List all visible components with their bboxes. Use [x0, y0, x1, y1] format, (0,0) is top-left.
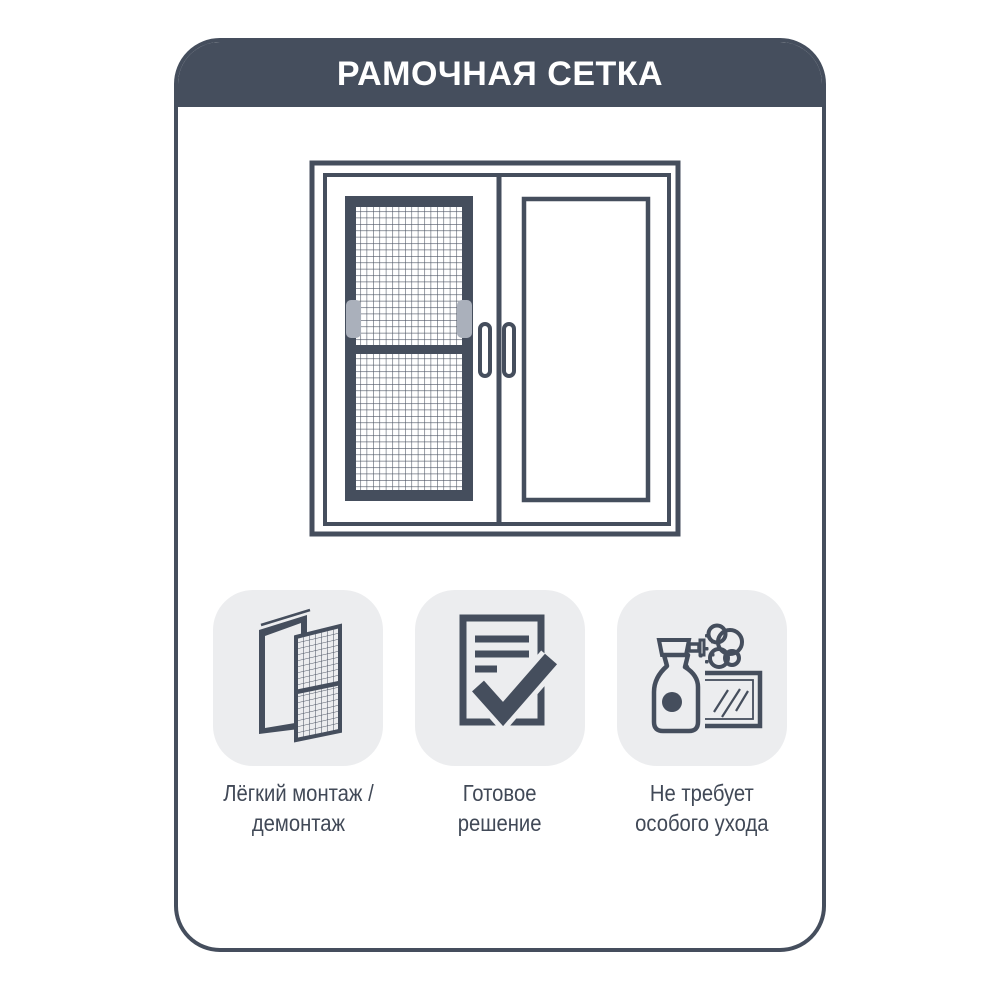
- feature-easy-install: Лёгкий монтаж / демонтаж: [213, 590, 383, 838]
- easy-care-icon: [617, 590, 787, 766]
- feature-label: Лёгкий монтаж / демонтаж: [223, 778, 373, 838]
- feature-label: Не требует особого ухода: [635, 778, 768, 838]
- feature-tile: [213, 590, 383, 766]
- feature-label: Готовое решение: [458, 778, 542, 838]
- card-header: РАМОЧНАЯ СЕТКА: [177, 41, 823, 107]
- feature-tile: [415, 590, 585, 766]
- feature-ready-solution: Готовое решение: [415, 590, 585, 838]
- feature-easy-care: Не требует особого ухода: [617, 590, 787, 838]
- page-title: РАМОЧНАЯ СЕТКА: [337, 55, 663, 94]
- window-illustration: [309, 160, 681, 537]
- product-info-card: РАМОЧНАЯ СЕТКА: [174, 38, 826, 952]
- easy-install-icon: [213, 590, 383, 766]
- feature-tile: [617, 590, 787, 766]
- feature-list: Лёгкий монтаж / демонтаж Готовое решение: [178, 590, 822, 838]
- window-with-mesh-icon: [309, 160, 681, 537]
- ready-solution-icon: [415, 590, 585, 766]
